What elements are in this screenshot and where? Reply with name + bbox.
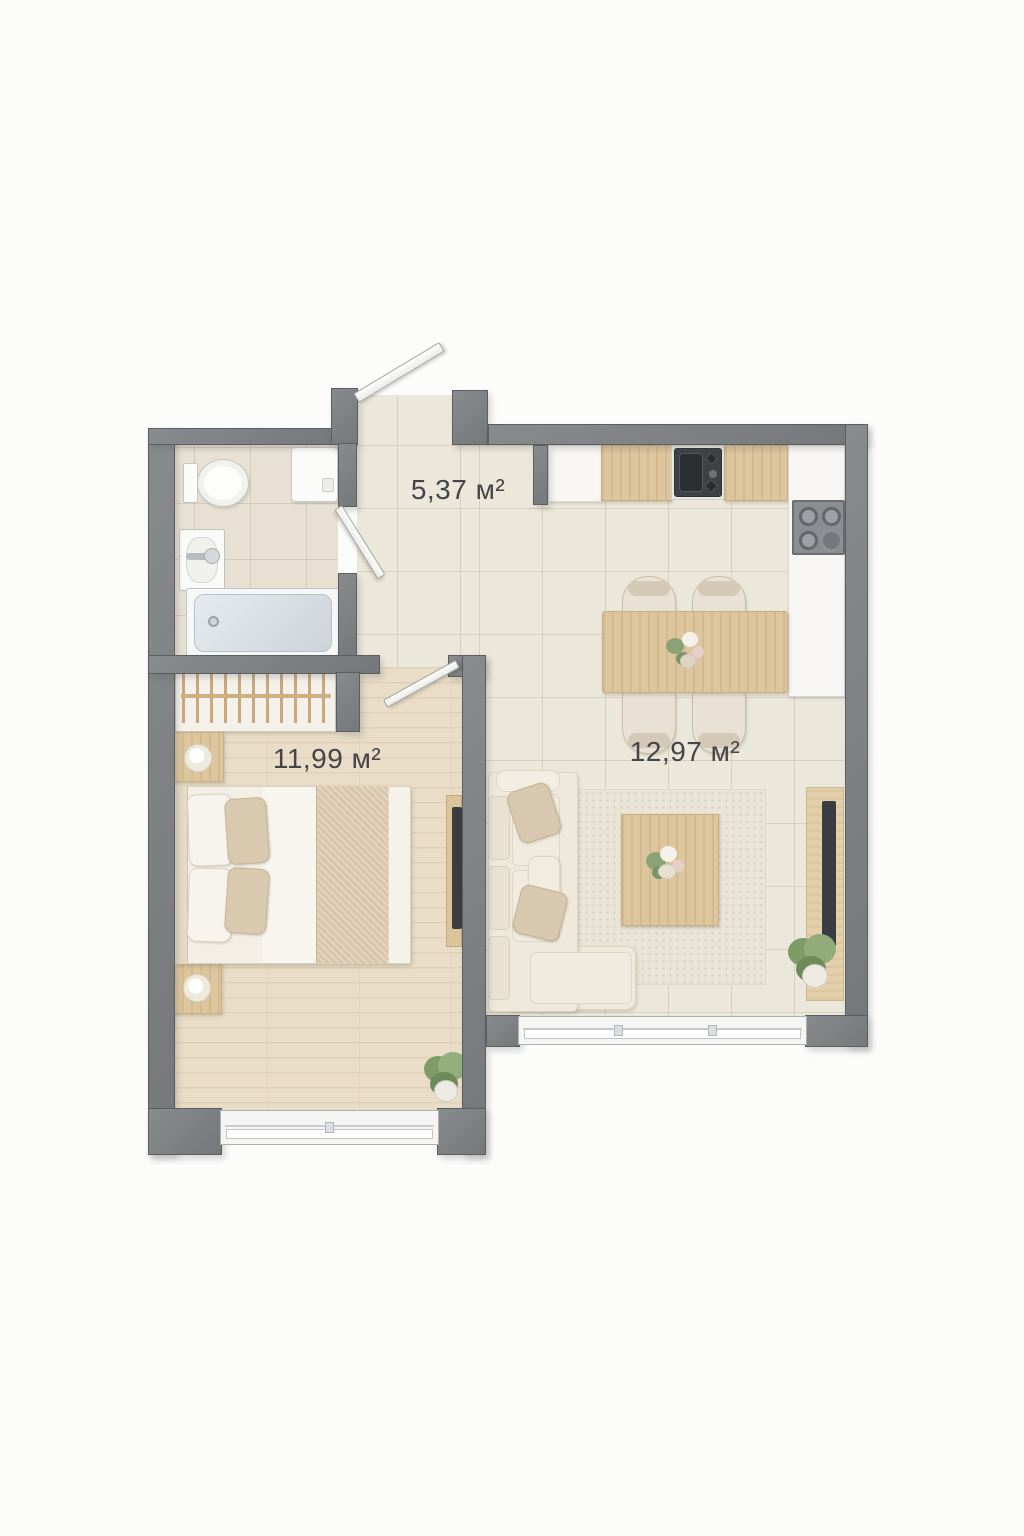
window-mullion [614, 1025, 623, 1036]
entry-threshold-floor [358, 395, 452, 445]
wall-top-kitchen [488, 424, 868, 445]
hallway-area-label: 5,37 м² [411, 474, 505, 506]
bed-blanket [316, 786, 390, 964]
wall-living-south-left [486, 1015, 520, 1047]
kitchen-counter-right [788, 445, 845, 697]
coffee-table-vase [658, 864, 676, 879]
bed-headboard [175, 786, 188, 964]
bed-pillow-beige-1 [224, 797, 271, 866]
dining-flowers [682, 632, 698, 647]
bed-foot-fold [388, 787, 410, 963]
wall-bathroom-east-lower [338, 573, 357, 658]
kitchen-counter-a [601, 445, 672, 501]
wall-bedroom-south-left [148, 1108, 222, 1155]
kitchen-cabinet-left [548, 445, 602, 502]
wall-left-exterior [148, 428, 175, 1155]
bed-pillow-beige-2 [224, 867, 271, 936]
wall-bedroom-south-right [437, 1108, 486, 1155]
kitchen-faucet-dot [709, 470, 717, 478]
window-mullion [708, 1025, 717, 1036]
floor-plan: 5,37 м² 11,99 м² 12,97 м² [0, 0, 1024, 1536]
living-room-window [518, 1016, 807, 1045]
living-room-tv [822, 801, 836, 947]
bathtub-drain [208, 616, 219, 627]
wardrobe-hangers [182, 673, 330, 723]
bedroom-area-label: 11,99 м² [273, 743, 381, 775]
cooktop-burner [822, 507, 841, 526]
wall-bathroom-east-upper [338, 443, 357, 507]
cooktop-burner [799, 507, 818, 526]
sofa-back-cushion [488, 866, 510, 930]
wall-living-south-right [805, 1015, 868, 1047]
window-mullion [325, 1122, 334, 1133]
toilet-tank [183, 463, 198, 503]
bedroom-tv [452, 807, 462, 929]
sofa-back-cushion [488, 936, 510, 1000]
toilet-bowl [197, 459, 249, 507]
wall-top-bathroom [148, 428, 340, 445]
sofa-seat-cushion [530, 952, 632, 1004]
window-sill [524, 1029, 801, 1039]
bedroom-plant-pot [434, 1080, 458, 1102]
washing-machine-door [322, 478, 334, 492]
wall-kitchen-stub [533, 445, 548, 505]
kitchen-counter-b [724, 445, 788, 501]
wardrobe-rail [181, 694, 331, 698]
candle-top [184, 744, 212, 772]
dining-vase [680, 654, 696, 668]
bed-sheet [262, 787, 318, 963]
living-kitchen-area-label: 12,97 м² [630, 736, 740, 768]
wall-right-exterior [845, 424, 868, 1047]
wall-entry-jamb-left [331, 388, 358, 445]
bedroom-window [220, 1110, 439, 1145]
wall-wardrobe-right [336, 672, 360, 732]
candle-bottom [183, 974, 211, 1002]
sink-faucet-knob [204, 548, 220, 564]
wall-entry-jamb-right [452, 390, 488, 445]
washing-machine [291, 447, 338, 502]
sofa-back-cushion [488, 796, 510, 860]
cooktop-burner [799, 531, 818, 550]
kitchen-sink-basin [679, 453, 703, 492]
cooktop-burner [820, 529, 843, 552]
entry-door [353, 342, 444, 403]
wall-bedroom-east [462, 655, 486, 1155]
living-plant-pot [802, 964, 828, 988]
